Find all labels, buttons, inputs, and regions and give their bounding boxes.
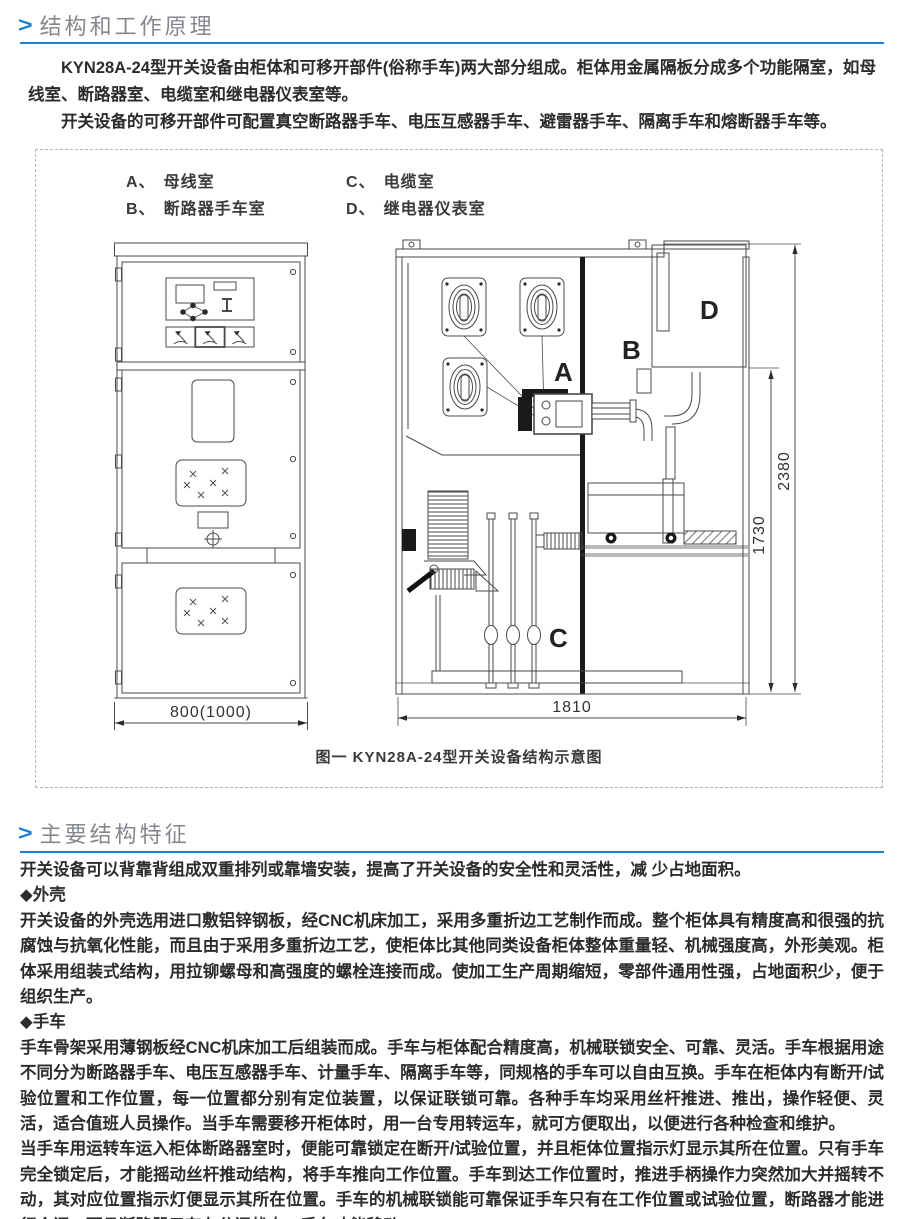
legend-item-c: C、 电缆室 bbox=[346, 168, 435, 192]
compartment-label-d: D bbox=[700, 295, 719, 325]
front-view-drawing: 800(1000) bbox=[113, 241, 309, 731]
paragraph: KYN28A-24型开关设备由柜体和可移开部件(俗称手车)两大部分组成。柜体用金… bbox=[28, 55, 876, 109]
legend-label: 母线室 bbox=[164, 168, 215, 192]
section-arrow-icon: > bbox=[18, 822, 33, 843]
legend-label: 断路器手车室 bbox=[164, 195, 266, 219]
legend-key: B、 bbox=[126, 195, 156, 219]
section2-rule bbox=[20, 851, 884, 853]
section1-rule bbox=[20, 42, 884, 44]
paragraph: 开关设备可以背靠背组成双重排列或靠墙安装，提高了开关设备的安全性和灵活性，减 少… bbox=[20, 858, 884, 883]
section1-title: 结构和工作原理 bbox=[40, 9, 215, 41]
section2-header: > 主要结构特征 bbox=[18, 818, 190, 848]
side-depth-dim-label: 1810 bbox=[552, 699, 592, 716]
figure-box: A、 母线室 C、 电缆室 B、 断路器手车室 D、 继电器仪表室 bbox=[35, 149, 883, 788]
feature-heading: ◆外壳 bbox=[20, 883, 884, 908]
section-arrow-icon: > bbox=[18, 14, 33, 35]
compartment-label-c: C bbox=[549, 623, 568, 653]
feature-heading: ◆手车 bbox=[20, 1010, 884, 1035]
figure-caption: 图一 KYN28A-24型开关设备结构示意图 bbox=[36, 746, 882, 767]
section1-header: > 结构和工作原理 bbox=[18, 10, 215, 40]
paragraph: 开关设备的可移开部件可配置真空断路器手车、电压互感器手车、避雷器手车、隔离手车和… bbox=[28, 109, 876, 136]
compartment-label-b: B bbox=[622, 335, 641, 365]
front-width-dim-label: 800(1000) bbox=[170, 704, 252, 721]
side-lower-height-dim-label: 1730 bbox=[751, 515, 768, 555]
legend-item-d: D、 继电器仪表室 bbox=[346, 195, 486, 219]
compartment-label-a: A bbox=[554, 357, 573, 387]
paragraph: 当手车用运转车运入柜体断路器室时，便能可靠锁定在断开/试验位置，并且柜体位置指示… bbox=[20, 1137, 884, 1219]
paragraph: 开关设备的外壳选用进口敷铝锌钢板，经CNC机床加工，采用多重折边工艺制作而成。整… bbox=[20, 909, 884, 1011]
legend-key: C、 bbox=[346, 168, 376, 192]
legend-key: A、 bbox=[126, 168, 156, 192]
section1-body: KYN28A-24型开关设备由柜体和可移开部件(俗称手车)两大部分组成。柜体用金… bbox=[28, 55, 876, 136]
legend-label: 电缆室 bbox=[384, 168, 435, 192]
legend-item-b: B、 断路器手车室 bbox=[126, 195, 266, 219]
legend-key: D、 bbox=[346, 195, 376, 219]
section2-body: 开关设备可以背靠背组成双重排列或靠墙安装，提高了开关设备的安全性和灵活性，减 少… bbox=[20, 858, 884, 1219]
document-page: > 结构和工作原理 KYN28A-24型开关设备由柜体和可移开部件(俗称手车)两… bbox=[0, 0, 900, 1219]
side-view-drawing: A B D bbox=[394, 239, 806, 731]
section2-title: 主要结构特征 bbox=[40, 817, 190, 849]
legend-item-a: A、 母线室 bbox=[126, 168, 215, 192]
legend-label: 继电器仪表室 bbox=[384, 195, 486, 219]
side-overall-height-dim-label: 2380 bbox=[776, 451, 793, 491]
paragraph: 手车骨架采用薄钢板经CNC机床加工后组装而成。手车与柜体配合精度高，机械联锁安全… bbox=[20, 1036, 884, 1138]
